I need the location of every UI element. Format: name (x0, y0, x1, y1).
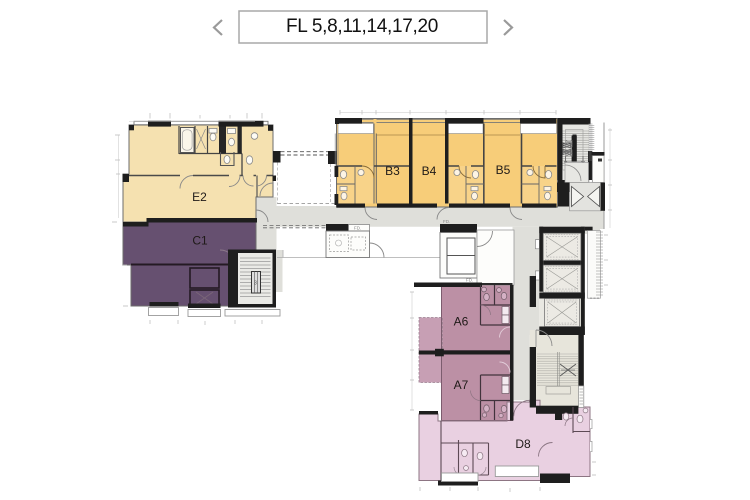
svg-text:B5: B5 (496, 163, 511, 177)
svg-text:FD.: FD. (354, 226, 361, 231)
svg-text:B3: B3 (385, 164, 400, 178)
svg-text:A7: A7 (454, 378, 469, 392)
svg-text:FD.: FD. (443, 219, 450, 224)
svg-text:A6: A6 (454, 315, 469, 329)
svg-text:E2: E2 (192, 190, 207, 204)
svg-text:FL 5,8,11,14,17,20: FL 5,8,11,14,17,20 (286, 16, 438, 37)
svg-text:FD.: FD. (466, 278, 473, 283)
svg-text:D8: D8 (515, 437, 531, 451)
svg-text:C1: C1 (192, 234, 208, 248)
svg-text:B4: B4 (422, 164, 437, 178)
svg-text:3: 3 (254, 281, 257, 287)
